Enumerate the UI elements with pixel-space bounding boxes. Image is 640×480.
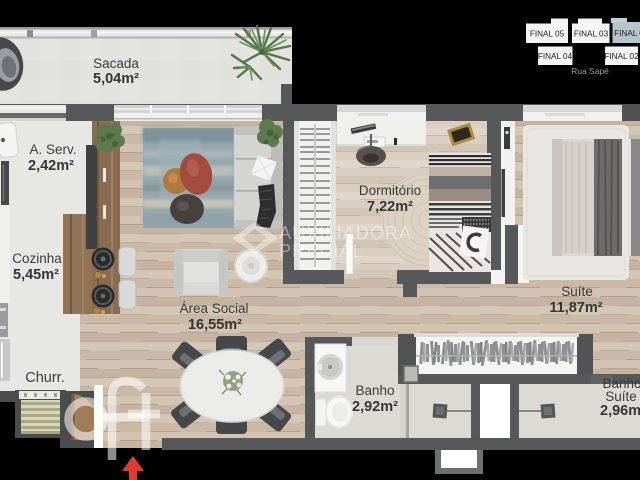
svg-text:Sacada: Sacada bbox=[93, 56, 139, 71]
svg-text:2,92m²: 2,92m² bbox=[352, 399, 398, 415]
svg-text:Área Social: Área Social bbox=[179, 301, 248, 316]
svg-text:PREDIAL: PREDIAL bbox=[279, 241, 364, 261]
svg-text:A. Serv.: A. Serv. bbox=[29, 142, 76, 157]
svg-text:Dormitório: Dormitório bbox=[359, 183, 421, 198]
svg-text:11,87m²: 11,87m² bbox=[549, 300, 602, 316]
svg-text:Suíte: Suíte bbox=[561, 284, 593, 299]
svg-text:Banho: Banho bbox=[355, 383, 394, 398]
svg-text:AUXILIADORA: AUXILIADORA bbox=[279, 223, 412, 243]
svg-text:Suíte: Suíte bbox=[605, 389, 637, 404]
svg-text:Rua Sapé: Rua Sapé bbox=[571, 66, 609, 76]
svg-text:FINAL 03: FINAL 03 bbox=[574, 30, 609, 39]
svg-text:FINAL 0: FINAL 0 bbox=[614, 29, 640, 38]
svg-text:FINAL 02: FINAL 02 bbox=[604, 52, 639, 61]
svg-text:Churr.: Churr. bbox=[25, 370, 65, 386]
svg-text:16,55m²: 16,55m² bbox=[188, 317, 242, 333]
svg-text:2,42m²: 2,42m² bbox=[28, 158, 74, 174]
svg-text:7,22m²: 7,22m² bbox=[367, 199, 413, 215]
svg-text:2,96m²: 2,96m² bbox=[600, 403, 640, 419]
svg-text:FINAL 04: FINAL 04 bbox=[538, 52, 573, 61]
svg-text:5,04m²: 5,04m² bbox=[93, 71, 139, 87]
svg-text:FINAL 05: FINAL 05 bbox=[530, 30, 565, 39]
svg-text:5,45m²: 5,45m² bbox=[13, 267, 59, 283]
svg-text:Cozinha: Cozinha bbox=[12, 251, 62, 266]
